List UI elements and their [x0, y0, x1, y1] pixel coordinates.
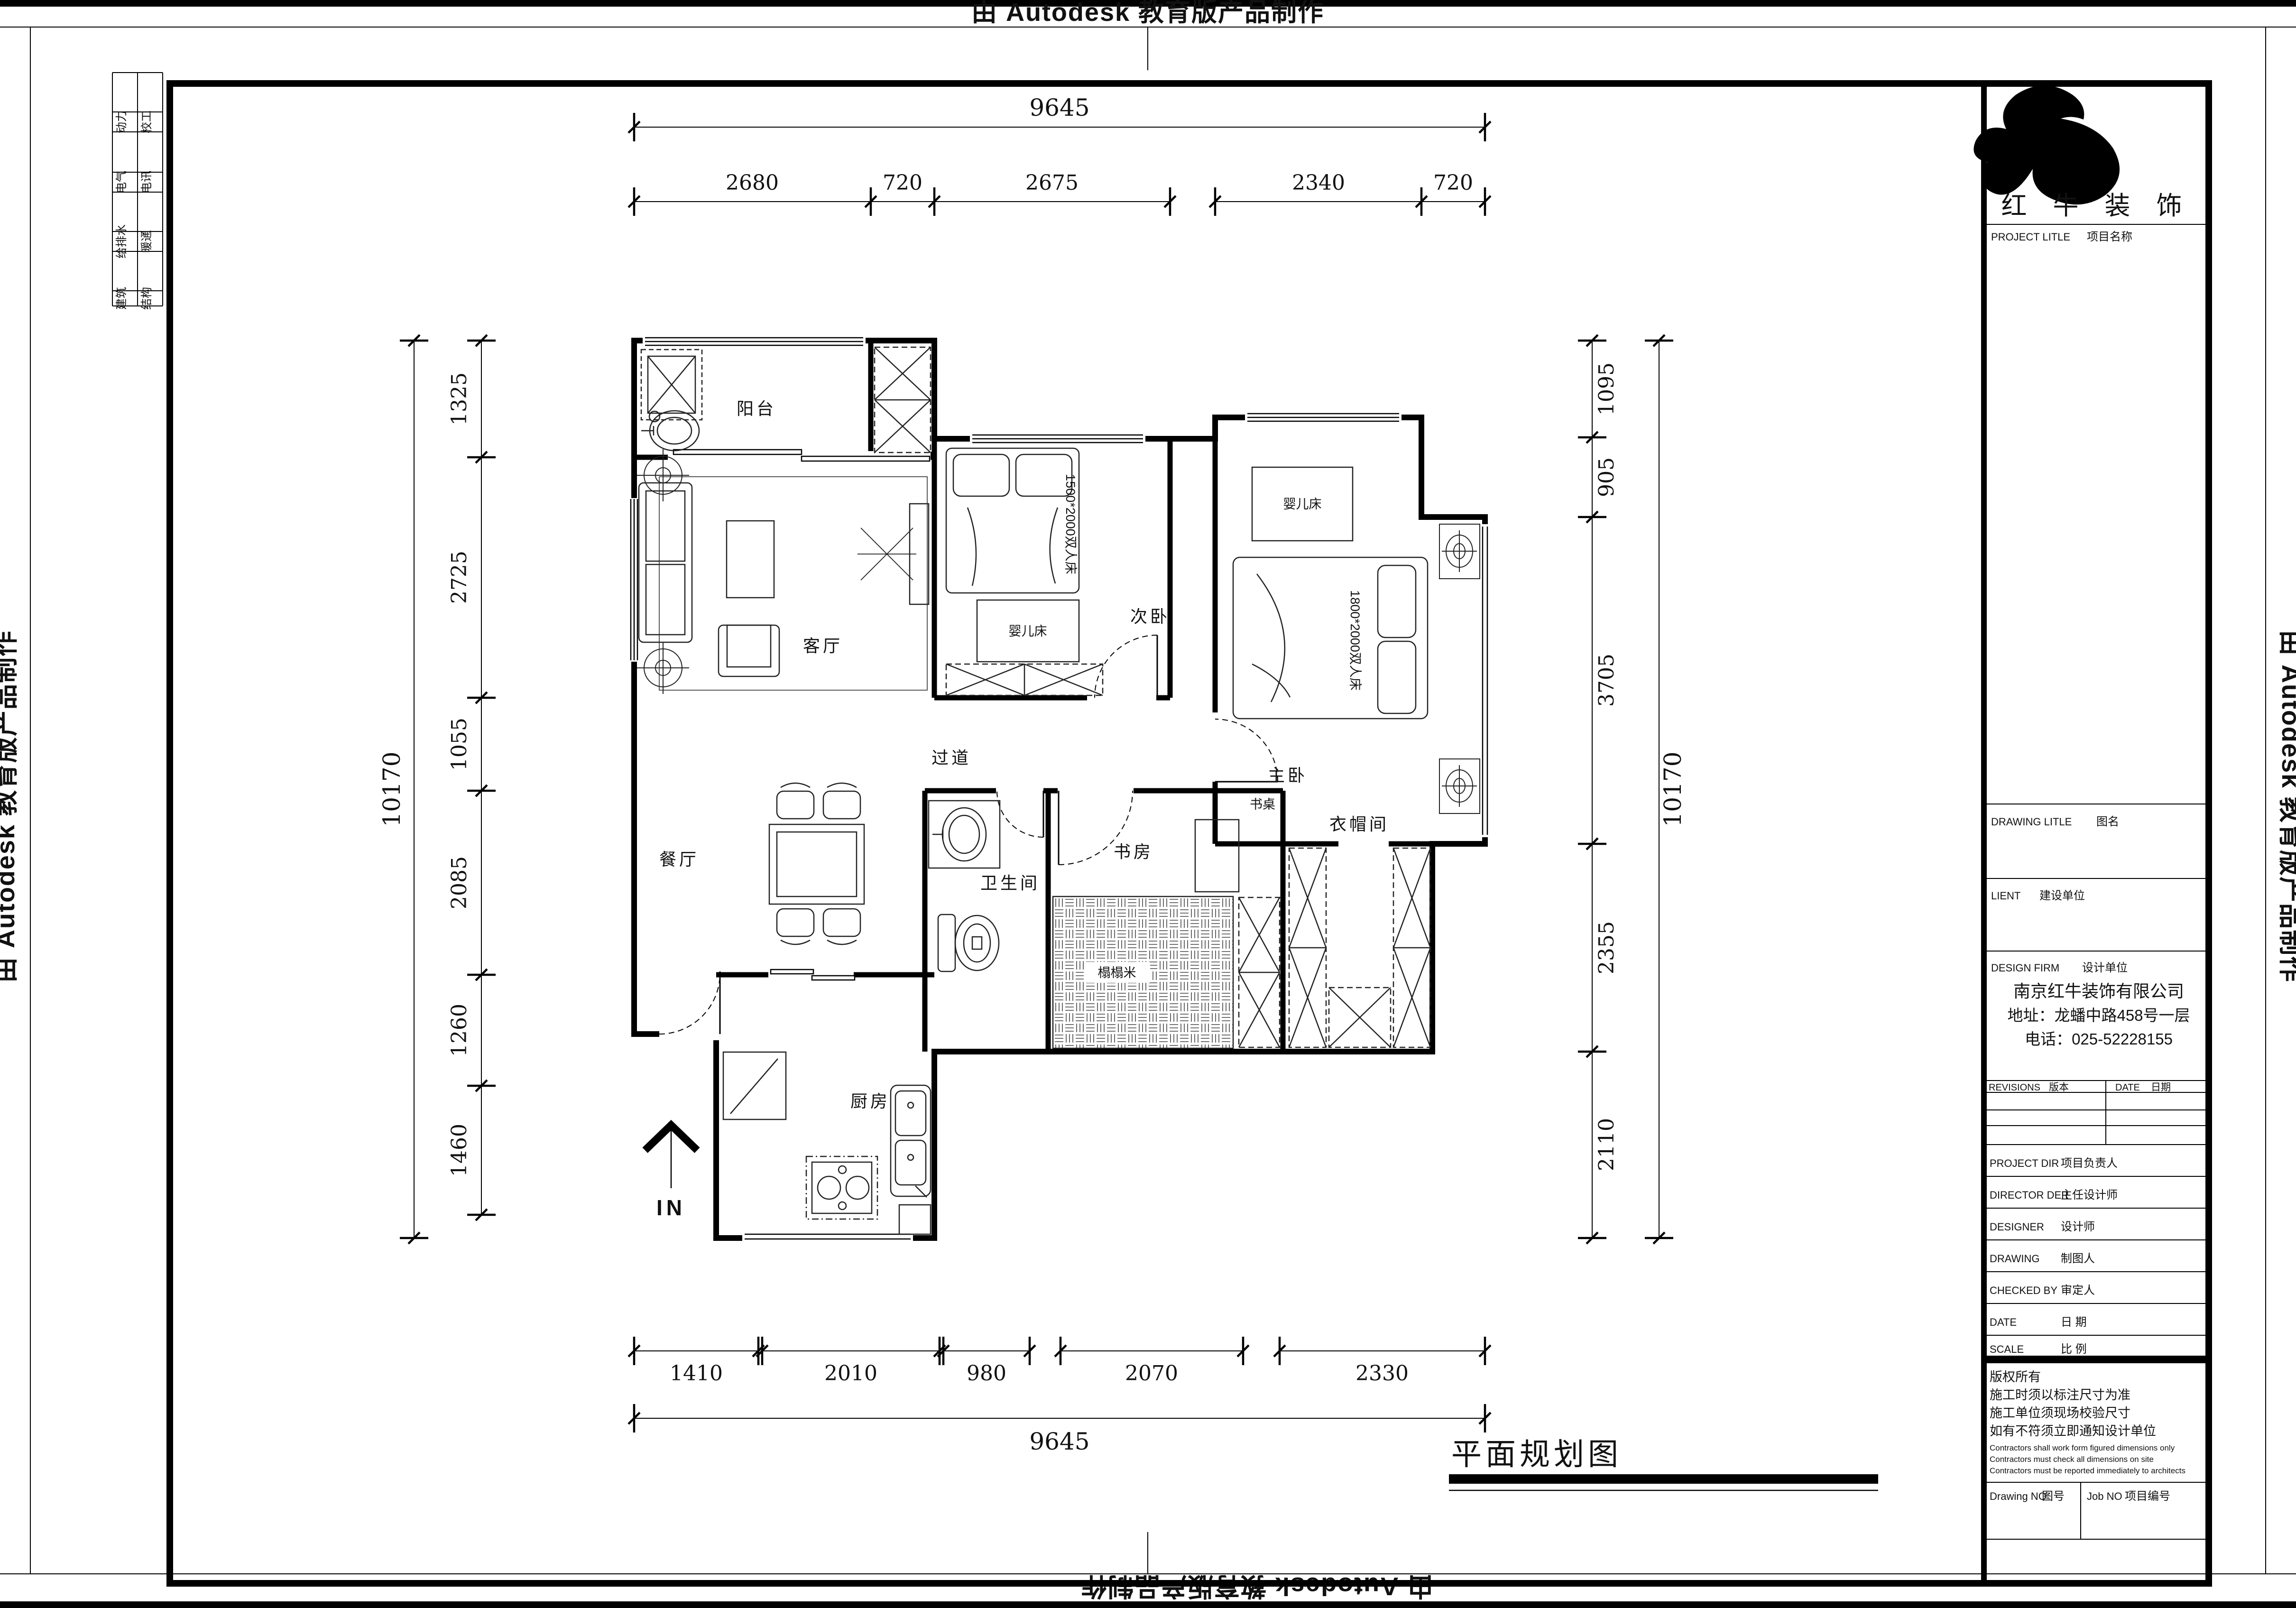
tb-row-designer-zh: 设计师: [2061, 1220, 2095, 1233]
discipline-labels: 动力 校工 电气 电讯 给排水 暖通 建筑 结构: [115, 111, 153, 310]
discipline-struct: 结构: [140, 287, 153, 310]
label-closet: 衣帽间: [1329, 814, 1389, 834]
study-cabinet: [1239, 897, 1280, 1047]
sofa: [639, 483, 692, 642]
label-crib1: 婴儿床: [1283, 497, 1322, 511]
label-study: 书房: [1114, 842, 1153, 861]
discipline-electric: 电气: [115, 171, 128, 194]
tb-row-scale-zh: 比 例: [2061, 1343, 2087, 1356]
tb-client-zh: 建设单位: [2039, 889, 2085, 902]
dim-top-4: 720: [1433, 171, 1473, 195]
kitchen-sink: [891, 1085, 931, 1197]
tb-note-en-0: Contractors shall work form figured dime…: [1990, 1443, 2175, 1452]
label-crib2: 婴儿床: [1009, 624, 1047, 638]
entry-label: IN: [656, 1195, 686, 1220]
dim-top-2: 2675: [1025, 171, 1079, 195]
dim-top-1: 720: [883, 171, 922, 195]
dining-set: [769, 783, 864, 944]
drawing-title-text: 平面规划图: [1451, 1437, 1622, 1471]
tb-design-firm-zh: 设计单位: [2082, 961, 2128, 974]
dimension-labels: 9645 2680 720 2675 2340 720 1410 2010 98…: [378, 94, 1687, 1455]
dim-left-1: 2725: [447, 551, 471, 604]
wardrobe-left: [1289, 848, 1326, 1047]
tb-row-drawing-zh: 制图人: [2061, 1252, 2095, 1265]
label-dining: 餐厅: [659, 850, 699, 869]
tb-drawing-no-en: Drawing NO: [1990, 1490, 2047, 1502]
tb-row-drawing-en: DRAWING: [1990, 1253, 2040, 1265]
dim-left-5: 1460: [447, 1124, 471, 1177]
banner-left: 由 Autodesk 教育版产品制作: [0, 630, 20, 983]
dim-right-3: 2355: [1595, 921, 1619, 974]
brand-logo: [1973, 85, 2120, 204]
dim-left-3: 2085: [447, 856, 471, 909]
discipline-check: 校工: [140, 111, 153, 133]
drawing-frame: [170, 83, 2209, 1583]
label-bed1: 主卧: [1268, 766, 1308, 785]
fridge: [723, 1052, 786, 1119]
bed-secondary: [946, 448, 1079, 593]
bath-vanity: [929, 801, 1000, 868]
dim-left-0: 1325: [447, 372, 471, 425]
tb-drawing-title-en: DRAWING LITLE: [1991, 816, 2072, 828]
floor-plan: IN 阳台 客厅 餐厅 厨房 卫生间 书房 衣帽间 次卧 主卧 过道 1500*…: [629, 335, 1490, 1243]
tb-row-director-zh: 主任设计师: [2061, 1189, 2118, 1201]
cad-sheet: 由 Autodesk 教育版产品制作 由 Autodesk 教育版产品制作 由 …: [0, 0, 2296, 1608]
dim-bottom-2: 980: [967, 1361, 1006, 1386]
label-hall: 过道: [931, 748, 971, 767]
tb-note-en-1: Contractors must check all dimensions on…: [1990, 1455, 2154, 1464]
dim-bottom-3: 2070: [1125, 1361, 1178, 1386]
tb-row-director-en: DIRECTOR DER: [1990, 1189, 2069, 1201]
sliding-doors: [673, 450, 930, 980]
titleblock-lines: [1984, 224, 2209, 1539]
dim-bottom-0: 1410: [670, 1361, 723, 1386]
dim-right-total: 10170: [1659, 751, 1687, 827]
discipline-telecom: 电讯: [140, 171, 153, 194]
tb-revisions-zh: 版本: [2049, 1082, 2069, 1093]
armchair: [719, 625, 779, 676]
balcony-sink: [641, 411, 699, 451]
tb-company-address: 地址：龙蟠中路458号一层: [2007, 1007, 2190, 1024]
discipline-power: 动力: [115, 111, 128, 133]
bed-master: [1233, 557, 1428, 719]
toilet: [938, 915, 999, 971]
dim-right-4: 2110: [1595, 1118, 1619, 1171]
tb-job-no-en: Job NO: [2087, 1490, 2122, 1502]
label-tatami: 榻榻米: [1098, 966, 1136, 980]
coffee-table: [727, 521, 774, 598]
tb-row-date-en: DATE: [1990, 1316, 2017, 1328]
tb-company-phone: 电话：025-52228155: [2025, 1030, 2173, 1048]
tb-project-title-zh: 项目名称: [2087, 231, 2132, 243]
tb-drawing-title-zh: 图名: [2096, 815, 2119, 828]
column-symbol-2: [637, 642, 689, 694]
nightstand-1: [1439, 524, 1480, 579]
label-bath: 卫生间: [980, 873, 1040, 893]
wardrobe-bottom: [1329, 988, 1391, 1047]
discipline-plumbing: 给排水: [115, 224, 128, 259]
tb-row-designer-en: DESIGNER: [1990, 1221, 2044, 1233]
dim-bottom-4: 2330: [1355, 1361, 1409, 1386]
brand-name: 红 牛 装 饰: [2001, 192, 2191, 220]
tv-cabinet: [858, 504, 929, 604]
tb-note-zh-3: 如有不符须立即通知设计单位: [1990, 1424, 2156, 1438]
entry-arrow: IN: [645, 1125, 697, 1220]
label-bed1-size: 1800*2000双人床: [1348, 590, 1362, 691]
tb-drawing-no-zh: 图号: [2042, 1490, 2065, 1503]
dim-left-4: 1260: [447, 1004, 471, 1057]
closet-top: [875, 347, 931, 453]
tb-project-title-en: PROJECT LITLE: [1991, 231, 2070, 243]
label-bed2-size: 1500*2000双人床: [1063, 474, 1078, 574]
tb-client-en: LIENT: [1991, 890, 2020, 902]
dim-right-0: 1095: [1595, 362, 1619, 416]
label-balcony: 阳台: [737, 399, 776, 418]
tb-row-checked-en: CHECKED BY: [1990, 1285, 2057, 1296]
living-ceiling-line: [659, 477, 927, 690]
dim-top-3: 2340: [1292, 171, 1345, 195]
cabinet-secondary: [946, 664, 1103, 695]
banner-top: 由 Autodesk 教育版产品制作: [971, 0, 1324, 27]
kitchen-corner-unit: [899, 1205, 931, 1234]
tb-note-zh-0: 版权所有: [1990, 1370, 2041, 1384]
dim-right-2: 3705: [1595, 654, 1619, 707]
tb-design-firm-en: DESIGN FIRM: [1991, 962, 2059, 974]
tb-note-zh-1: 施工时须以标注尺寸为准: [1990, 1388, 2130, 1402]
tb-note-en-2: Contractors must be reported immediately…: [1990, 1466, 2185, 1475]
label-desk: 书桌: [1250, 797, 1275, 812]
tb-note-zh-2: 施工单位须现场校验尺寸: [1990, 1406, 2130, 1420]
dim-bottom-total: 9645: [1029, 1428, 1089, 1455]
tb-date-col-zh: 日期: [2151, 1082, 2171, 1093]
label-bed2: 次卧: [1130, 607, 1170, 626]
tb-row-project-dir-zh: 项目负责人: [2061, 1157, 2118, 1170]
tb-job-no-zh: 项目编号: [2125, 1490, 2170, 1503]
dim-right-1: 905: [1595, 457, 1619, 497]
tb-revisions-en: REVISIONS: [1989, 1082, 2040, 1093]
wardrobe-right: [1393, 848, 1430, 1047]
dim-left-total: 10170: [378, 751, 406, 827]
tb-row-date-zh: 日 期: [2061, 1316, 2087, 1329]
dim-bottom-1: 2010: [824, 1361, 877, 1386]
title-block: 红 牛 装 饰 PROJECT LITLE 项目名称 DRAWING LITLE…: [1973, 85, 2209, 1539]
discipline-arch: 建筑: [115, 287, 128, 310]
drawing-title: 平面规划图: [1449, 1437, 1878, 1490]
nightstand-2: [1439, 759, 1480, 813]
tb-date-col-en: DATE: [2115, 1082, 2140, 1093]
stove: [806, 1156, 877, 1219]
dim-left-2: 1055: [447, 718, 471, 771]
dim-top-total: 9645: [1029, 94, 1089, 121]
tb-row-scale-en: SCALE: [1990, 1343, 2024, 1355]
tb-row-checked-zh: 审定人: [2061, 1284, 2095, 1297]
discipline-hvac: 暖通: [140, 230, 153, 253]
banner-right: 由 Autodesk 教育版产品制作: [2277, 630, 2296, 983]
dim-top-0: 2680: [726, 171, 779, 195]
label-living: 客厅: [803, 636, 843, 656]
tb-company-name: 南京红牛装饰有限公司: [2013, 981, 2184, 1001]
tb-row-project-dir-en: PROJECT DIR: [1990, 1157, 2059, 1169]
label-kitchen: 厨房: [850, 1091, 890, 1111]
